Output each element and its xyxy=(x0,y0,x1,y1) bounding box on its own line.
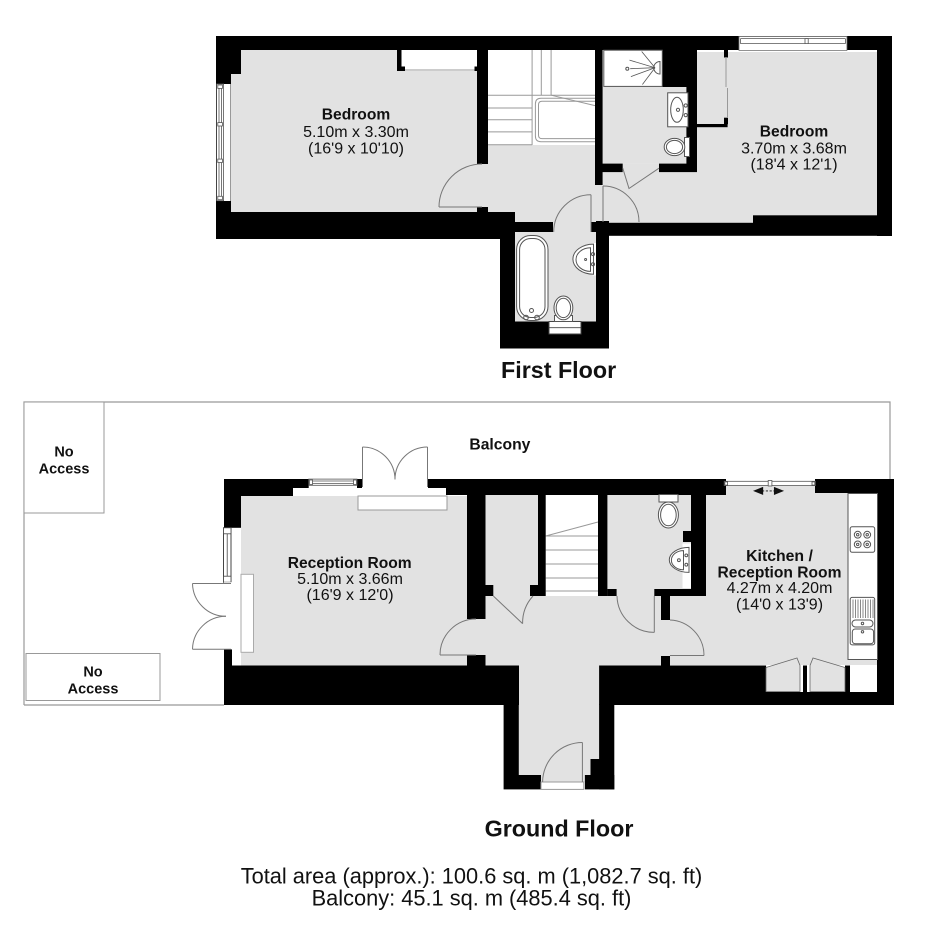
svg-text:Access: Access xyxy=(68,682,119,698)
svg-text:(16'9 x 12'0): (16'9 x 12'0) xyxy=(306,587,393,604)
svg-text:Bedroom: Bedroom xyxy=(760,123,828,140)
svg-text:4.27m x 4.20m: 4.27m x 4.20m xyxy=(727,580,833,597)
svg-text:First Floor: First Floor xyxy=(501,357,616,383)
svg-text:5.10m x 3.30m: 5.10m x 3.30m xyxy=(303,124,409,141)
svg-text:Balcony: 45.1 sq. m (485.4 sq.: Balcony: 45.1 sq. m (485.4 sq. ft) xyxy=(312,885,632,910)
svg-text:No: No xyxy=(83,665,102,681)
svg-text:5.10m x 3.66m: 5.10m x 3.66m xyxy=(297,571,403,588)
svg-text:Bedroom: Bedroom xyxy=(322,107,390,124)
svg-text:No: No xyxy=(54,445,73,461)
svg-text:(18'4 x 12'1): (18'4 x 12'1) xyxy=(750,157,837,174)
svg-text:Kitchen /: Kitchen / xyxy=(746,548,813,565)
svg-text:(14'0 x 13'9): (14'0 x 13'9) xyxy=(736,596,823,613)
svg-text:Ground Floor: Ground Floor xyxy=(485,816,634,842)
svg-text:3.70m x 3.68m: 3.70m x 3.68m xyxy=(741,140,847,157)
svg-text:Reception Room: Reception Room xyxy=(288,555,412,572)
svg-text:Balcony: Balcony xyxy=(469,436,530,453)
svg-text:(16'9 x 10'10): (16'9 x 10'10) xyxy=(308,141,404,158)
svg-text:Access: Access xyxy=(39,462,90,478)
